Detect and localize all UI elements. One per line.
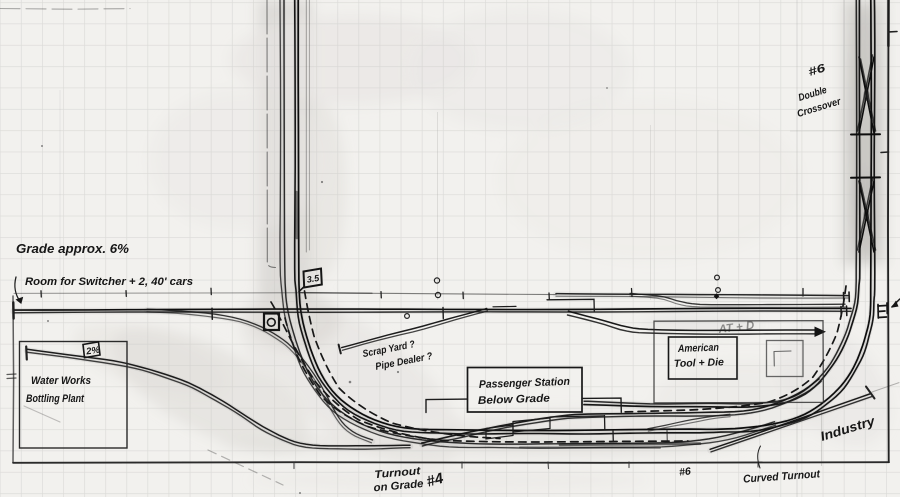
svg-text:Bottling Plant: Bottling Plant [26, 393, 85, 405]
svg-text:#6: #6 [679, 465, 692, 478]
svg-text:Room for Switcher + 2, 40' car: Room for Switcher + 2, 40' cars [25, 276, 193, 288]
svg-text:Tool + Die: Tool + Die [674, 356, 725, 370]
svg-text:2%: 2% [84, 345, 101, 358]
svg-text:American: American [677, 342, 719, 355]
svg-text:Grade approx. 6%: Grade approx. 6% [16, 242, 129, 256]
svg-text:Water Works: Water Works [31, 375, 91, 387]
svg-text:Below Grade: Below Grade [478, 392, 550, 407]
